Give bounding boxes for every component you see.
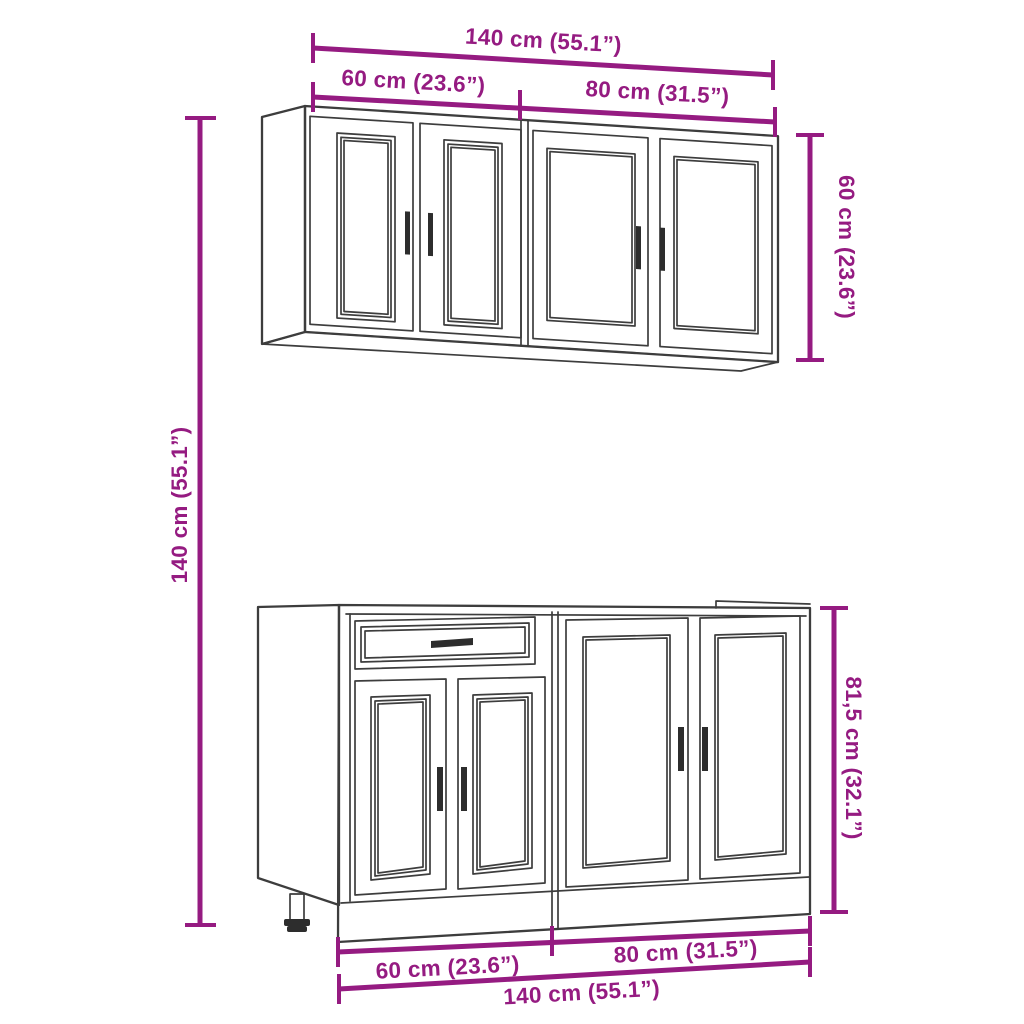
wall-cabinet-60-doors bbox=[310, 116, 521, 337]
door-panel bbox=[550, 152, 632, 323]
dim-base-height: 81,5 cm (32.1”) bbox=[820, 608, 866, 912]
dim-top-segments: 60 cm (23.6”) 80 cm (31.5”) bbox=[313, 65, 775, 137]
product-dimension-diagram: 140 cm (55.1”) 60 cm (23.6”) 80 cm (31.5… bbox=[0, 0, 1024, 1024]
adjustable-foot bbox=[284, 894, 310, 932]
dim-upper-height: 60 cm (23.6”) bbox=[796, 135, 859, 360]
door-handle bbox=[660, 228, 665, 271]
base-cabinet-unit bbox=[258, 601, 810, 942]
foot-cap bbox=[284, 919, 310, 926]
kitchen-cabinet-set-drawing: 140 cm (55.1”) 60 cm (23.6”) 80 cm (31.5… bbox=[0, 0, 1024, 1024]
door-panel bbox=[718, 636, 783, 857]
door-handle bbox=[702, 727, 708, 771]
dim-label-total-height: 140 cm (55.1”) bbox=[167, 427, 192, 584]
dim-total-height: 140 cm (55.1”) bbox=[167, 118, 216, 925]
cabinet-door bbox=[420, 123, 521, 337]
plinth-line bbox=[341, 877, 809, 903]
door-panel-frame bbox=[674, 156, 758, 333]
door-panel bbox=[677, 160, 755, 331]
door-panel-frame bbox=[337, 133, 395, 322]
door-panel bbox=[344, 140, 388, 314]
dim-label-upper-height: 60 cm (23.6”) bbox=[834, 175, 859, 319]
wall-cabinet-80-doors bbox=[533, 131, 772, 354]
dim-label-top-right: 80 cm (31.5”) bbox=[585, 76, 730, 109]
dim-label-base-height: 81,5 cm (32.1”) bbox=[841, 676, 866, 839]
door-panel bbox=[451, 147, 495, 321]
dim-label-top-left: 60 cm (23.6”) bbox=[341, 65, 486, 98]
door-panel-frame bbox=[341, 137, 391, 317]
dim-label-top-total: 140 cm (55.1”) bbox=[464, 24, 622, 58]
door-panel bbox=[586, 638, 667, 865]
wall-cabinet-outline bbox=[305, 106, 778, 362]
door-panel bbox=[480, 700, 525, 867]
door-panel-frame bbox=[444, 140, 502, 329]
door-panel-frame bbox=[715, 633, 786, 860]
base-cabinet-80-doors bbox=[566, 616, 800, 887]
door-panel-frame bbox=[547, 148, 635, 326]
base-cabinet-60-doors bbox=[355, 677, 545, 895]
countertop-edge bbox=[346, 614, 806, 616]
wall-cabinet-unit bbox=[262, 106, 778, 371]
door-handle bbox=[678, 727, 684, 771]
door-handle bbox=[437, 767, 443, 811]
base-cabinet-side-panel bbox=[258, 605, 339, 905]
door-panel-frame bbox=[583, 635, 670, 868]
door-panel-frame bbox=[473, 693, 532, 874]
base-cabinet-60-drawer bbox=[355, 617, 535, 669]
foot-stem bbox=[290, 894, 304, 920]
wall-cabinet-side-panel bbox=[262, 106, 305, 344]
drawer-handle bbox=[431, 638, 473, 648]
cabinet-door bbox=[355, 679, 446, 895]
door-handle bbox=[636, 226, 641, 269]
door-panel-frame bbox=[448, 144, 498, 324]
door-panel bbox=[378, 702, 423, 873]
door-panel-frame bbox=[477, 697, 528, 870]
door-handle bbox=[461, 767, 467, 811]
door-panel-frame bbox=[375, 699, 426, 876]
cabinet-door bbox=[310, 116, 413, 331]
foot-base bbox=[287, 926, 307, 932]
door-handle bbox=[428, 213, 433, 256]
door-handle bbox=[405, 211, 410, 254]
door-panel-frame bbox=[371, 695, 430, 880]
wall-cabinet-front bbox=[305, 106, 778, 362]
